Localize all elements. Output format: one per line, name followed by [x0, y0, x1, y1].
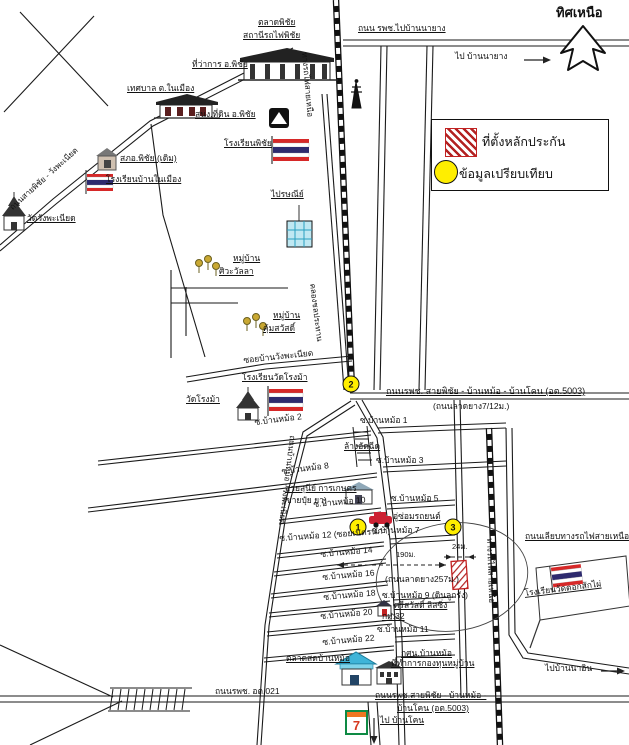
label-village1-line2: ศิวะวัลลา — [219, 267, 254, 277]
label-road-5003-note: (ถนนลาดยาง7/12ม.) — [433, 402, 509, 412]
label-paved-257: (ถนนลาดยาง257ม.) — [385, 575, 459, 585]
label-village-fund: ที่ทำการกองทุนหมู่บ้าน — [391, 659, 474, 669]
land-office-icon — [269, 108, 289, 128]
wat-doksak-school-plate — [530, 556, 629, 648]
bridge-hatching — [108, 688, 192, 711]
district-office-icon — [238, 48, 338, 80]
label-post-office: ไปรษณีย์ — [271, 190, 304, 200]
label-wat-rong-ma: วัดโรงม้า — [186, 395, 220, 405]
tower-icon — [351, 80, 362, 108]
compass-label: ทิศเหนือ — [556, 6, 603, 21]
label-road-021: ถนนรพช. อต.021 — [215, 687, 280, 697]
label-to-ban-khon: ไป บ้านโคน — [380, 716, 424, 726]
label-municipality: เทศบาล ต.ในเมือง — [127, 84, 194, 94]
label-wat-wang-phaniat: วัดวังพะเนียด — [27, 214, 76, 224]
label-phichai-market: ตลาดพิชัย — [258, 18, 295, 28]
label-wat-rong-ma-school: โรงเรียนวัดโรงม้า — [242, 373, 308, 383]
phichai-banmo-map: 7 2 1 3 ที่ตั้งหลักประกัน ข้อมูลเปรียบเท… — [0, 0, 629, 745]
legend-collateral-label: ที่ตั้งหลักประกัน — [482, 132, 565, 152]
marker-3-number: 3 — [450, 523, 455, 533]
seven-eleven-digit: 7 — [353, 718, 360, 733]
label-phichai-station: สถานีรถไฟพิชัย — [243, 31, 300, 41]
label-road-along-railway: ถนนเลียบทางรถไฟสายเหนือ — [525, 532, 629, 542]
post-office-icon — [287, 205, 312, 247]
label-to-ban-na-in: ไปบ้านนาอิน — [545, 664, 592, 674]
label-road-5003-b2: บ้านโคน (อต.5003) — [397, 704, 469, 714]
phichai-school-flag-icon — [272, 136, 309, 164]
label-old-police: สภอ.พิชัย (เดิม) — [120, 154, 177, 164]
label-village2-line1: หมู่บ้าน — [273, 311, 300, 321]
comparison-swatch-icon — [434, 160, 458, 184]
label-soi11: ซ.บ้านหม้อ 11 — [377, 625, 429, 635]
marker-2-number: 2 — [348, 380, 353, 390]
legend-box: ที่ตั้งหลักประกัน ข้อมูลเปรียบเทียบ — [431, 119, 609, 191]
label-car-wash: ล้างอัดฉีด — [344, 442, 380, 452]
label-saisunee: สายสุนีย์ การเกษตร — [285, 484, 357, 494]
old-police-icon — [96, 148, 118, 170]
railway-upper — [336, 0, 352, 390]
label-to-banayang: ไป บ้านนายาง — [455, 52, 508, 62]
label-land-office: สนง.ที่ดิน อ.พิชัย — [195, 110, 256, 120]
label-road-to-banayang: ถนน รพช.ไปบ้านนายาง — [358, 24, 446, 34]
label-km32: กม.32 — [382, 612, 405, 622]
label-soi1: ซ.บ้านหม้อ 1 — [360, 416, 408, 426]
label-soi3: ซ.บ้านหม้อ 3 — [376, 456, 424, 466]
label-village2-line2: คุ้มสวัสดิ์ — [263, 324, 295, 334]
legend-comparison-label: ข้อมูลเปรียบเทียบ — [459, 164, 553, 184]
wat-rong-ma-icon — [236, 387, 260, 420]
label-dim-24: 24ม. — [452, 543, 467, 552]
map-drawing: 7 2 1 3 — [0, 0, 629, 745]
label-srisawad: ศรีสวัสดิ์ ลิสซิ่ง — [394, 601, 447, 611]
label-district-office: ที่ว่าการ อ.พิชัย — [192, 60, 248, 70]
village1-palms-icon — [196, 256, 220, 277]
label-road-5003-b1: ถนนรพช.สายพิชัย - บ้านหม้อ - — [375, 691, 486, 701]
label-phichai-school: โรงเรียนพิชัย — [224, 139, 272, 149]
seven-eleven-icon: 7 — [346, 711, 367, 734]
label-village1-line1: หมู่บ้าน — [233, 254, 260, 264]
label-soi5: ซ.บ้านหม้อ 5 — [391, 494, 439, 504]
label-dim-190: 190ม. — [396, 551, 416, 560]
label-garage: อู่ซ่อมรถยนต์ — [393, 512, 441, 522]
north-arrow-icon — [561, 26, 605, 70]
collateral-swatch-icon — [445, 128, 477, 157]
label-road-5003: ถนนรพช. สายพิชัย - บ้านหม้อ - บ้านโคน (อ… — [386, 386, 585, 396]
label-ban-nai-mueang-school: โรงเรียนบ้านในเมือง — [106, 175, 181, 185]
label-fresh-market: ตลาดสดบ้านหม้อ — [286, 654, 350, 664]
